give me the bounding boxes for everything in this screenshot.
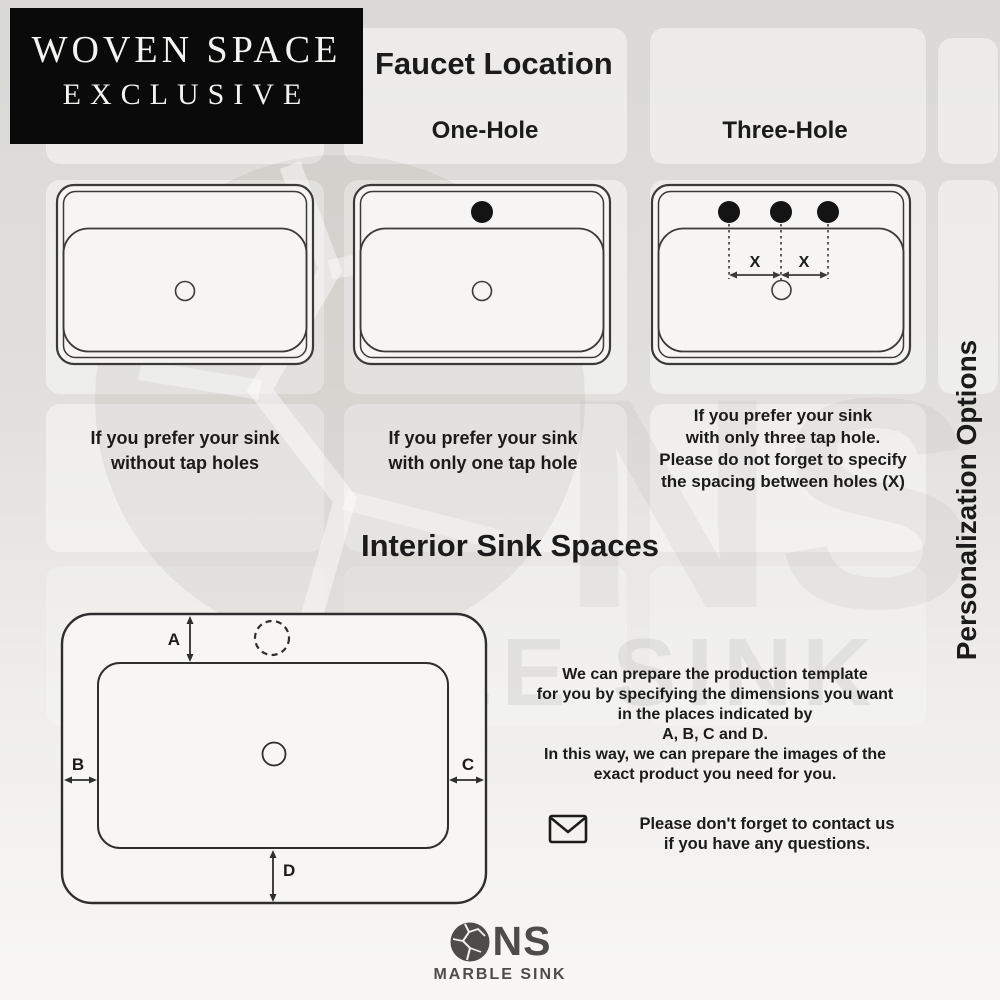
faucet-location-title: Faucet Location bbox=[375, 46, 613, 82]
interior-sink-spaces-title: Interior Sink Spaces bbox=[300, 528, 720, 564]
dim-a-label: A bbox=[168, 630, 180, 649]
sink-one-hole-diagram bbox=[352, 183, 612, 366]
caption-line: If you prefer your sink bbox=[358, 426, 608, 451]
description-line: A, B, C and D. bbox=[500, 725, 930, 745]
spacing-x-label: X bbox=[799, 254, 810, 271]
contact-line: Please don't forget to contact us bbox=[596, 814, 938, 834]
caption-line: with only one tap hole bbox=[358, 451, 608, 476]
marble-sink-logo: NS MARBLE SINK bbox=[400, 918, 600, 984]
logo-ns-text: NS bbox=[493, 918, 552, 965]
sink-three-hole-diagram: X X bbox=[650, 183, 912, 366]
contact-line: if you have any questions. bbox=[596, 834, 938, 854]
caption-line: If you prefer your sink bbox=[633, 405, 933, 427]
spacing-x-label: X bbox=[750, 254, 761, 271]
caption-line: without tap holes bbox=[60, 451, 310, 476]
one-hole-label: One-Hole bbox=[375, 117, 595, 145]
bg-tile bbox=[938, 38, 998, 164]
three-hole-caption: If you prefer your sink with only three … bbox=[633, 405, 933, 493]
caption-line: Please do not forget to specify bbox=[633, 449, 933, 471]
sink-no-hole-diagram bbox=[55, 183, 315, 366]
caption-line: with only three tap hole. bbox=[633, 427, 933, 449]
description-line: In this way, we can prepare the images o… bbox=[500, 745, 930, 765]
tap-hole-icon bbox=[770, 201, 792, 223]
no-hole-caption: If you prefer your sink without tap hole… bbox=[60, 426, 310, 476]
personalization-description: We can prepare the production template f… bbox=[500, 665, 930, 785]
three-hole-label: Three-Hole bbox=[675, 117, 895, 145]
dim-c-label: C bbox=[462, 755, 474, 774]
marble-ball-icon bbox=[449, 921, 491, 963]
tap-hole-icon bbox=[718, 201, 740, 223]
interior-dimensions-diagram: A B C D bbox=[60, 612, 488, 905]
contact-note: Please don't forget to contact us if you… bbox=[548, 814, 938, 854]
description-line: for you by specifying the dimensions you… bbox=[500, 685, 930, 705]
one-hole-caption: If you prefer your sink with only one ta… bbox=[358, 426, 608, 476]
personalization-options-label: Personalization Options bbox=[951, 340, 983, 660]
brand-name: WOVEN SPACE bbox=[10, 28, 363, 72]
tap-hole-icon bbox=[471, 201, 493, 223]
brand-tagline: EXCLUSIVE bbox=[10, 78, 363, 112]
description-line: exact product you need for you. bbox=[500, 765, 930, 785]
tap-hole-icon bbox=[817, 201, 839, 223]
contact-text: Please don't forget to contact us if you… bbox=[596, 814, 938, 854]
logo-subtitle: MARBLE SINK bbox=[400, 966, 600, 984]
description-line: in the places indicated by bbox=[500, 705, 930, 725]
dim-b-label: B bbox=[72, 755, 84, 774]
envelope-icon bbox=[548, 814, 588, 844]
brand-badge: WOVEN SPACE EXCLUSIVE bbox=[10, 8, 363, 144]
dim-d-label: D bbox=[283, 861, 295, 880]
description-line: We can prepare the production template bbox=[500, 665, 930, 685]
caption-line: the spacing between holes (X) bbox=[633, 471, 933, 493]
caption-line: If you prefer your sink bbox=[60, 426, 310, 451]
